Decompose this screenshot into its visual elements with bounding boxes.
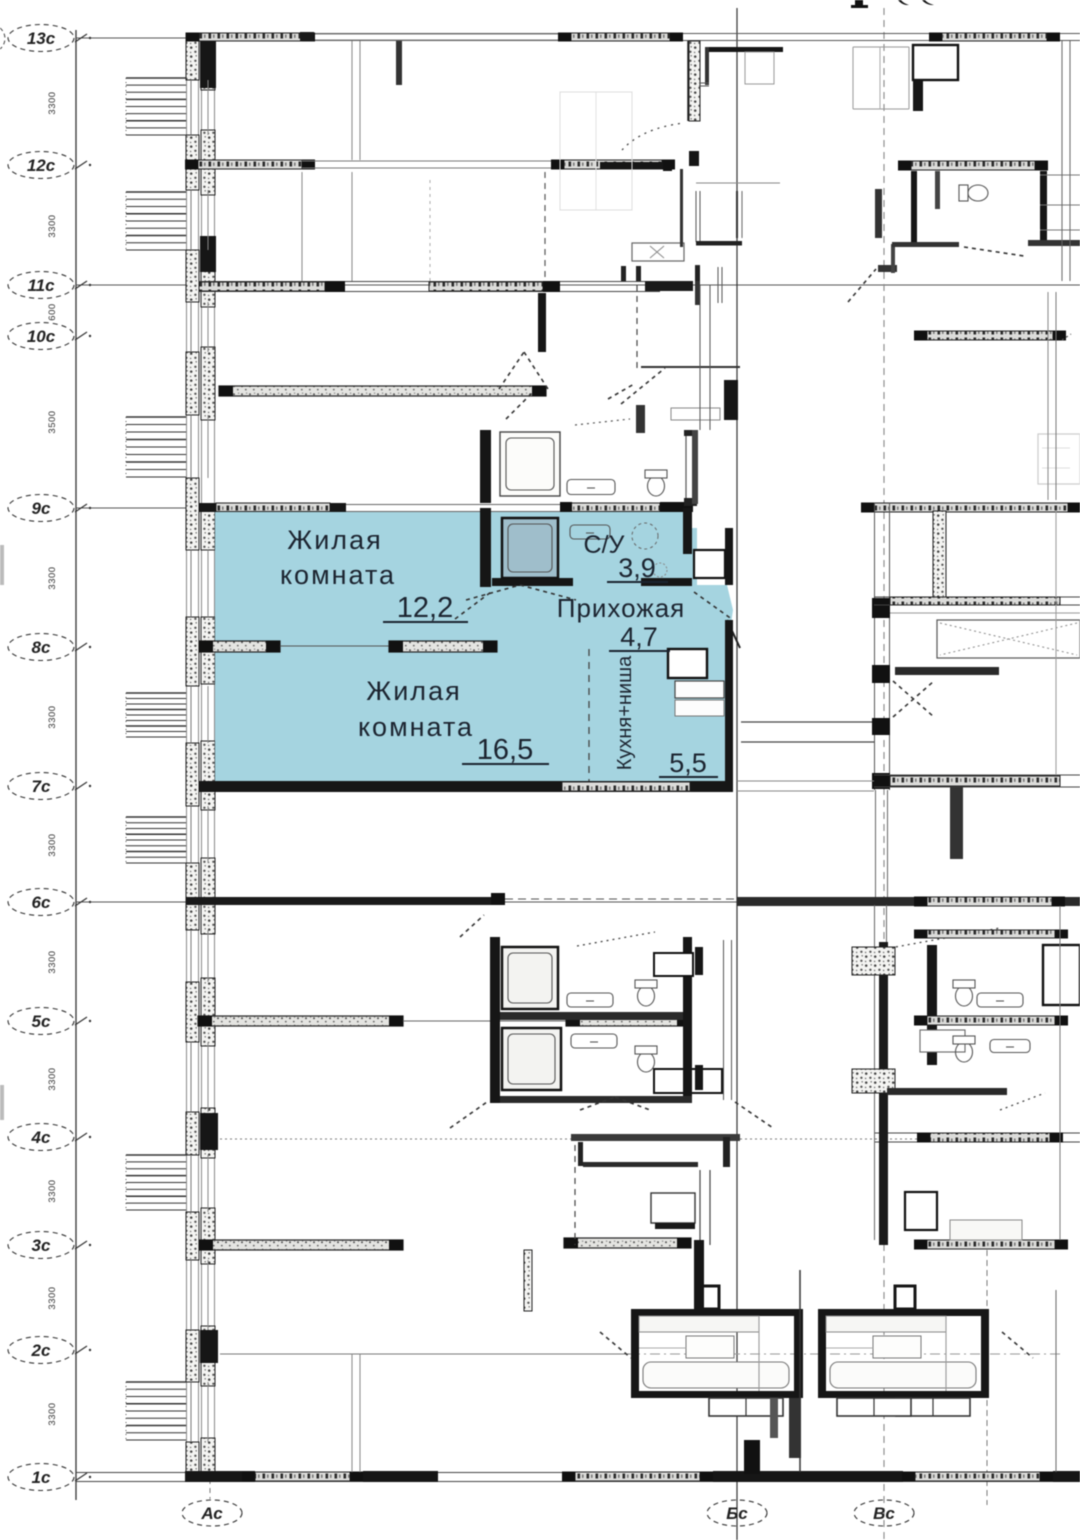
svg-text:12,2: 12,2 — [397, 592, 453, 624]
svg-text:Жилая: Жилая — [366, 676, 461, 706]
svg-text:5,5: 5,5 — [669, 748, 707, 778]
svg-text:Бс: Бс — [726, 1504, 748, 1523]
svg-text:3300: 3300 — [47, 705, 58, 728]
svg-text:комната: комната — [280, 560, 396, 590]
svg-text:3300: 3300 — [47, 1286, 58, 1309]
svg-text:3300: 3300 — [47, 1179, 58, 1202]
svg-text:13с: 13с — [27, 29, 56, 48]
svg-text:11с: 11с — [27, 276, 55, 295]
svg-text:4с: 4с — [31, 1128, 51, 1147]
svg-text:3с: 3с — [32, 1236, 51, 1255]
svg-text:3300: 3300 — [47, 1067, 58, 1090]
svg-text:4,7: 4,7 — [620, 622, 658, 652]
svg-text:3300: 3300 — [47, 1402, 58, 1425]
svg-text:Кухня+ниша: Кухня+ниша — [614, 655, 636, 770]
svg-text:Прихожая: Прихожая — [557, 593, 685, 623]
svg-text:Ас: Ас — [200, 1504, 223, 1523]
svg-text:3300: 3300 — [47, 91, 58, 114]
svg-text:2с: 2с — [31, 1341, 51, 1360]
svg-text:Жилая: Жилая — [287, 525, 382, 555]
svg-text:3500: 3500 — [47, 410, 58, 433]
svg-text:7с: 7с — [32, 777, 51, 796]
svg-text:16,5: 16,5 — [477, 734, 533, 766]
svg-text:3300: 3300 — [47, 214, 58, 237]
svg-text:Вс: Вс — [873, 1504, 895, 1523]
svg-text:10с: 10с — [27, 327, 56, 346]
svg-text:3300: 3300 — [47, 833, 58, 856]
svg-text:3300: 3300 — [47, 950, 58, 973]
svg-text:12с: 12с — [27, 156, 56, 175]
svg-text:3300: 3300 — [47, 566, 58, 589]
svg-text:600: 600 — [47, 303, 58, 320]
svg-text:8с: 8с — [32, 638, 51, 657]
svg-text:6с: 6с — [32, 893, 51, 912]
svg-text:5с: 5с — [32, 1012, 51, 1031]
svg-text:9с: 9с — [32, 499, 51, 518]
svg-text:комната: комната — [358, 712, 474, 742]
svg-text:1с: 1с — [32, 1468, 51, 1487]
svg-text:3,9: 3,9 — [618, 553, 656, 583]
